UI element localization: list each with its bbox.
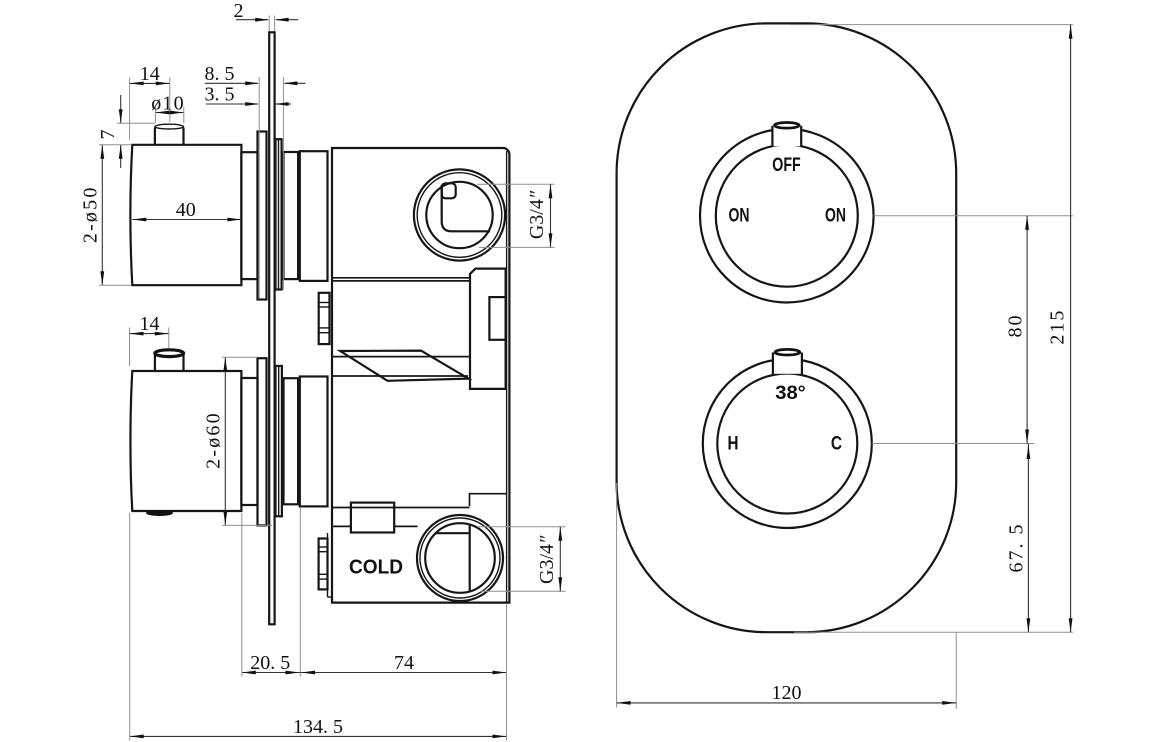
svg-text:H: H <box>728 433 739 454</box>
svg-text:ø10: ø10 <box>151 93 185 115</box>
svg-text:134. 5: 134. 5 <box>293 716 343 738</box>
svg-text:120: 120 <box>772 682 802 704</box>
svg-text:G3/4″: G3/4″ <box>526 190 548 239</box>
svg-text:40: 40 <box>176 199 196 221</box>
svg-text:2: 2 <box>234 0 244 22</box>
svg-text:ON: ON <box>729 205 750 226</box>
svg-text:80: 80 <box>1005 314 1027 338</box>
svg-text:74: 74 <box>394 652 414 674</box>
svg-text:G3/4″: G3/4″ <box>536 535 558 584</box>
svg-text:38°: 38° <box>775 383 806 404</box>
svg-text:67. 5: 67. 5 <box>1006 523 1028 573</box>
svg-text:2-ø60: 2-ø60 <box>202 411 224 469</box>
svg-text:20. 5: 20. 5 <box>250 652 290 674</box>
svg-text:ON: ON <box>825 205 846 226</box>
svg-text:7: 7 <box>97 130 119 140</box>
svg-text:14: 14 <box>140 63 160 85</box>
svg-text:COLD: COLD <box>349 556 403 578</box>
svg-text:8. 5: 8. 5 <box>205 63 235 85</box>
svg-text:C: C <box>831 433 842 454</box>
svg-text:3. 5: 3. 5 <box>205 84 235 106</box>
svg-text:2-ø50: 2-ø50 <box>80 185 102 243</box>
svg-text:14: 14 <box>140 313 160 335</box>
svg-text:OFF: OFF <box>772 155 801 176</box>
svg-text:215: 215 <box>1047 309 1069 345</box>
